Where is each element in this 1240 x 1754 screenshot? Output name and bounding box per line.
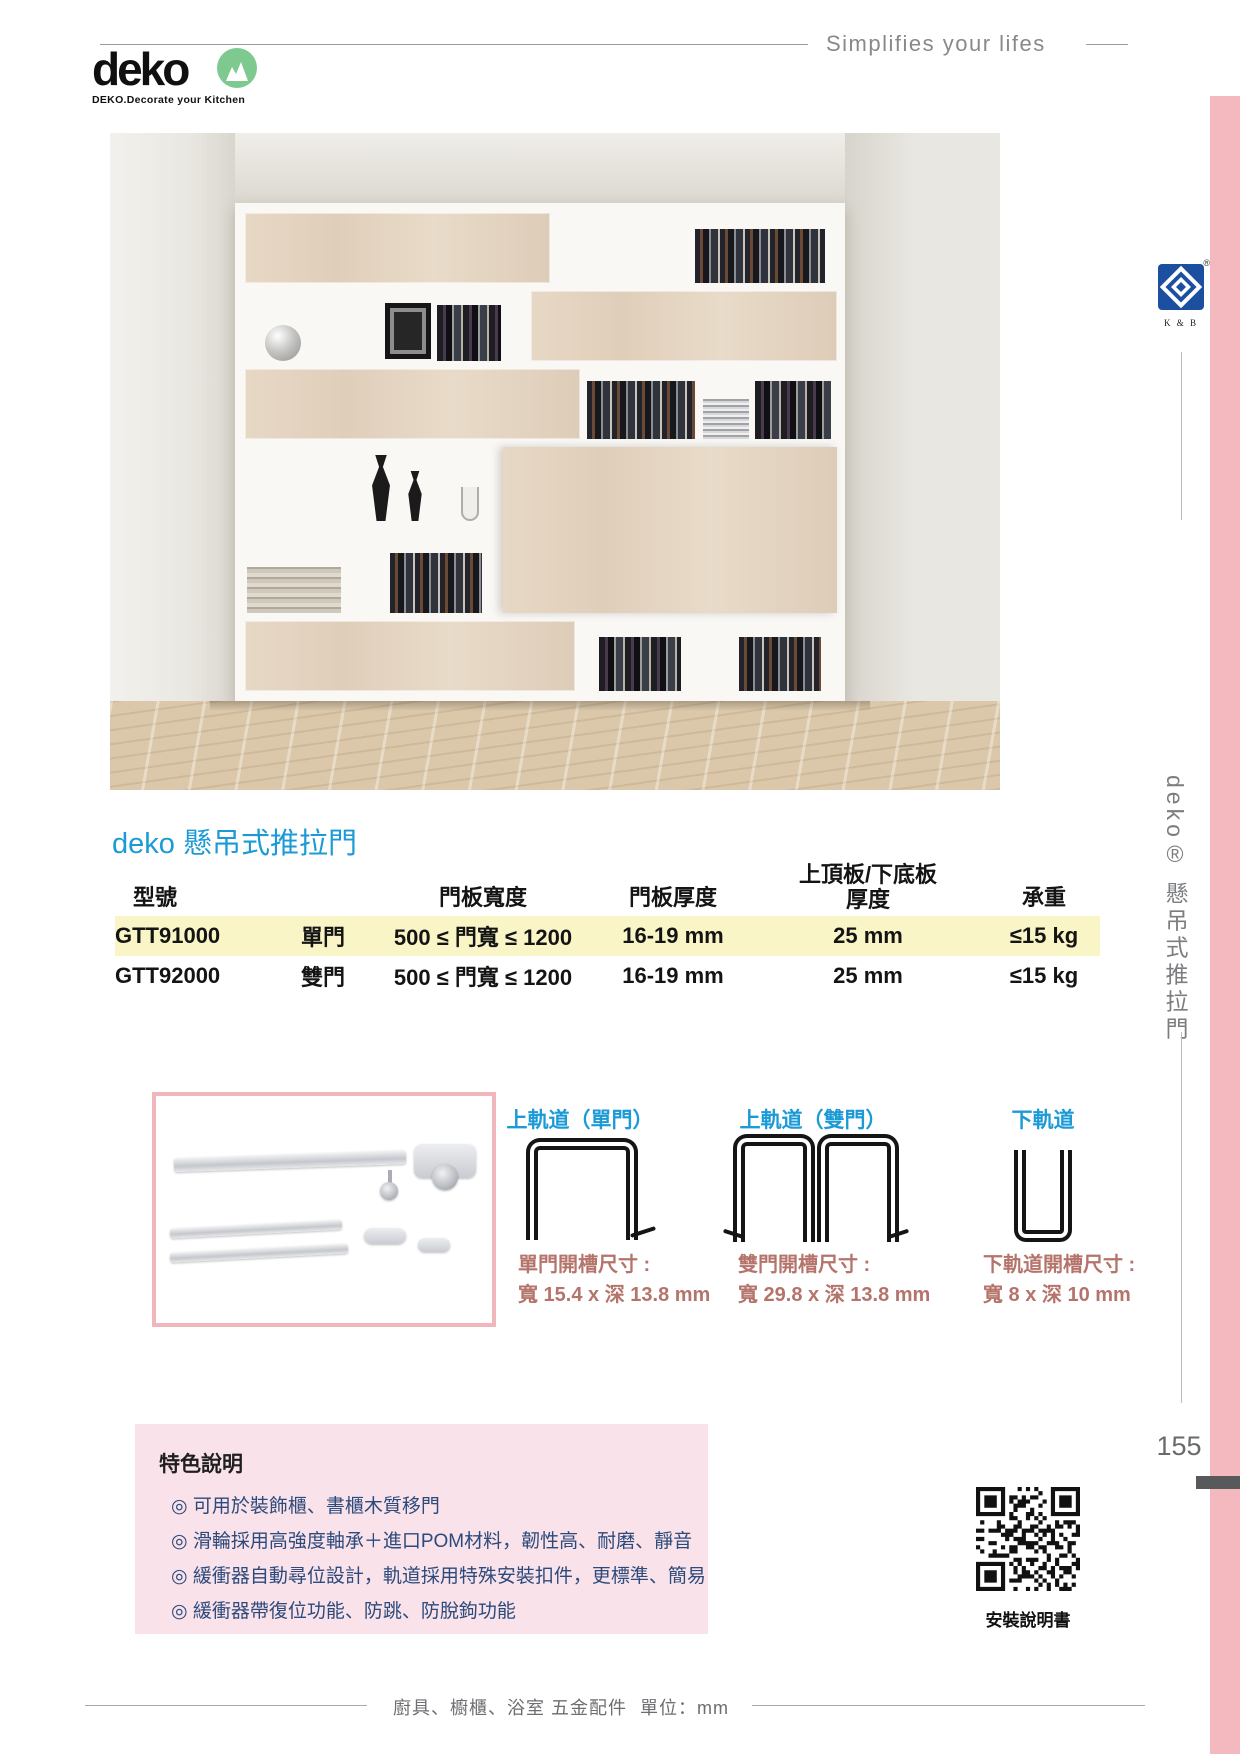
hardware-rail (170, 1243, 348, 1262)
page-number-bar (1196, 1476, 1240, 1489)
page-number: 155 (1146, 1431, 1212, 1462)
cell-board-thickness: 25 mm (748, 923, 988, 949)
hardware-rail (174, 1150, 406, 1172)
header-door-width: 門板寬度 (368, 880, 598, 912)
footer-category: 廚具、櫥櫃、浴室 五金配件 (393, 1694, 627, 1720)
track-profile-single-icon (526, 1138, 638, 1240)
photo-floor (110, 701, 1000, 790)
track-caption-single: 單門開槽尺寸 : 寬 15.4 x 深 13.8 mm (518, 1250, 710, 1310)
header-board-thickness: 上頂板/下底板 厚度 (748, 862, 988, 912)
deko-logo: deko DEKO.Decorate your Kitchen (92, 48, 312, 106)
sliding-door-panel (245, 213, 550, 283)
sidebar-vertical-title: deko® 懸吊式推拉門 (1158, 775, 1192, 1075)
books (739, 637, 821, 691)
header-load: 承重 (988, 880, 1100, 912)
hardware-small-part (364, 1228, 406, 1244)
sliding-door-panel (245, 369, 580, 439)
photo-wall-right (845, 133, 1000, 703)
decor-cd-stack (703, 399, 749, 439)
deko-logo-green-icon (216, 47, 258, 94)
books (695, 229, 825, 283)
footer-unit: 單位：mm (640, 1694, 729, 1720)
bookshelf-unit (235, 203, 845, 701)
kb-logo: ® K & B (1156, 264, 1206, 328)
hardware-roller (380, 1182, 398, 1200)
cell-door-thickness: 16-19 mm (598, 923, 748, 949)
photo-wall-left (110, 133, 235, 703)
qr-label: 安裝說明書 (966, 1606, 1090, 1631)
spec-table-row-gtt91000: GTT91000 單門 500 ≤ 門寬 ≤ 1200 16-19 mm 25 … (115, 916, 1100, 956)
kb-logo-icon (1158, 264, 1204, 310)
header-model: 型號 (115, 880, 278, 912)
decor-vase (403, 471, 427, 521)
kb-registered-mark: ® (1203, 258, 1210, 268)
header-slogan: Simplifies your lifes (826, 31, 1046, 57)
footer-rule-left (85, 1705, 367, 1706)
spec-table-row-gtt92000: GTT92000 雙門 500 ≤ 門寬 ≤ 1200 16-19 mm 25 … (115, 956, 1100, 996)
deko-logo-text: deko (92, 43, 187, 95)
qr-code (976, 1487, 1080, 1591)
large-sliding-door-panel (503, 447, 837, 613)
cell-door-thickness: 16-19 mm (598, 963, 748, 989)
hardware-roller (432, 1164, 458, 1190)
decor-vase (365, 455, 397, 521)
decor-glass (461, 487, 479, 521)
spec-table: 型號 門板寬度 門板厚度 上頂板/下底板 厚度 承重 GTT91000 單門 5… (115, 856, 1100, 996)
cell-model: GTT91000 (115, 923, 278, 949)
cell-load: ≤15 kg (988, 963, 1100, 989)
photo-ceiling (235, 133, 845, 203)
feature-item: ◎ 緩衝器自動尋位設計，軌道採用特殊安裝扣件，更標準、簡易 (159, 1559, 698, 1594)
books (599, 637, 681, 691)
decor-magazines (247, 567, 341, 613)
sidebar-rule-top (1181, 352, 1182, 520)
features-title: 特色說明 (159, 1448, 698, 1478)
track-profile-bottom-icon (1014, 1150, 1072, 1242)
hardware-small-part (418, 1238, 450, 1252)
track-caption-double: 雙門開槽尺寸 : 寬 29.8 x 深 13.8 mm (738, 1250, 930, 1310)
cell-door-type: 雙門 (278, 960, 368, 992)
track-profile-double-icon (733, 1134, 899, 1242)
feature-item: ◎ 緩衝器帶復位功能、防跳、防脫鉤功能 (159, 1594, 698, 1629)
sliding-door-panel (531, 291, 837, 361)
features-box: 特色說明 ◎ 可用於裝飾櫃、書櫃木質移門 ◎ 滑輪採用高強度軸承＋進口POM材料… (135, 1424, 708, 1634)
product-photo (110, 133, 1000, 790)
header-rule-left (100, 44, 808, 45)
header-rule-right (1086, 44, 1128, 45)
feature-item: ◎ 可用於裝飾櫃、書櫃木質移門 (159, 1489, 698, 1524)
track-title-double: 上軌道（雙門） (733, 1104, 893, 1134)
kb-logo-label: K & B (1156, 318, 1206, 328)
catalog-page: Simplifies your lifes deko DEKO.Decorate… (0, 0, 1240, 1754)
track-title-single: 上軌道（單門） (500, 1104, 660, 1134)
deko-logo-wordmark: deko (92, 48, 242, 90)
cell-door-type: 單門 (278, 920, 368, 952)
track-caption-bottom: 下軌道開槽尺寸 : 寬 8 x 深 10 mm (983, 1250, 1135, 1310)
books (437, 305, 501, 361)
photo-floor-shadow (210, 701, 870, 711)
feature-item: ◎ 滑輪採用高強度軸承＋進口POM材料，韌性高、耐磨、靜音 (159, 1524, 698, 1559)
books (755, 381, 831, 439)
track-title-bottom: 下軌道 (963, 1104, 1123, 1134)
cell-load: ≤15 kg (988, 923, 1100, 949)
sliding-door-panel (245, 621, 575, 691)
deko-logo-tagline: DEKO.Decorate your Kitchen (92, 94, 312, 106)
books (390, 553, 482, 613)
cell-board-thickness: 25 mm (748, 963, 988, 989)
header-door-thickness: 門板厚度 (598, 880, 748, 912)
cell-door-width: 500 ≤ 門寬 ≤ 1200 (368, 960, 598, 992)
hardware-rail (170, 1220, 342, 1239)
books (587, 381, 695, 439)
decor-picture-frame (385, 303, 431, 359)
spec-table-header-row: 型號 門板寬度 門板厚度 上頂板/下底板 厚度 承重 (115, 856, 1100, 916)
cell-door-width: 500 ≤ 門寬 ≤ 1200 (368, 920, 598, 952)
page-edge-pink-bar (1210, 96, 1240, 1754)
decor-sphere (265, 325, 301, 361)
sidebar-rule-bottom (1181, 1032, 1182, 1403)
cell-model: GTT92000 (115, 963, 278, 989)
footer-rule-right (752, 1705, 1145, 1706)
hardware-photo-box (152, 1092, 496, 1327)
